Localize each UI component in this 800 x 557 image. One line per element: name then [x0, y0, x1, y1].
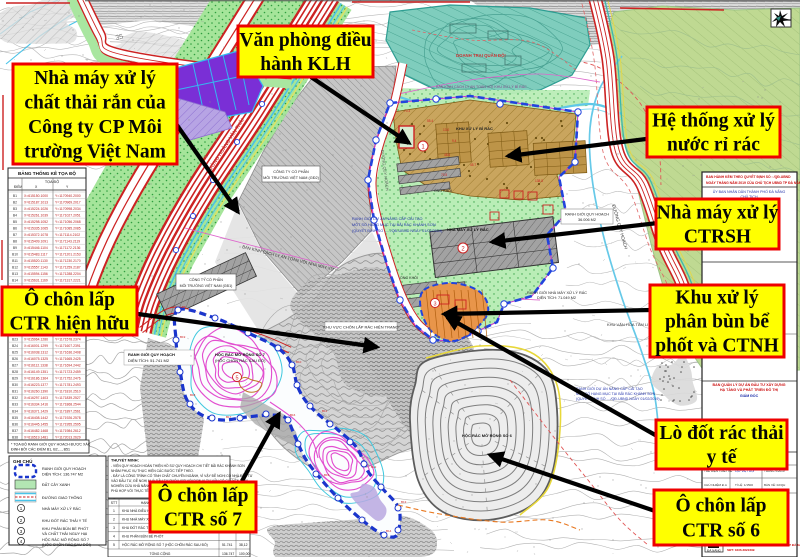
svg-text:(HỘC CHÔN RÁC SAU ĐỐI): (HỘC CHÔN RÁC SAU ĐỐI) [42, 542, 92, 547]
svg-text:X=615964.1286: X=615964.1286 [24, 338, 48, 342]
svg-text:Y=1171636.2408: Y=1171636.2408 [55, 351, 81, 355]
svg-text:CTR hiện hữu: CTR hiện hữu [9, 314, 129, 335]
svg-text:B2: B2 [13, 200, 17, 204]
svg-text:X=616519.1481: X=616519.1481 [24, 435, 48, 439]
svg-text:B14: B14 [386, 529, 392, 533]
svg-text:DIỆN TÍCH: 71.049 M2: DIỆN TÍCH: 71.049 M2 [537, 295, 576, 300]
svg-text:X=616149.1351: X=616149.1351 [24, 370, 48, 374]
svg-text:SĐT: 0236.3822399: SĐT: 0236.3822399 [727, 548, 755, 552]
svg-text:B32: B32 [12, 396, 18, 400]
svg-text:Y=1171839.2527: Y=1171839.2527 [55, 396, 81, 400]
svg-text:Y=1172013.2629: Y=1172013.2629 [55, 435, 81, 439]
svg-text:B7: B7 [13, 233, 17, 237]
svg-text:Lò đốt rác thải: Lò đốt rác thải [659, 423, 784, 444]
svg-text:Văn phòng điều: Văn phòng điều [239, 30, 371, 51]
svg-text:Nhà máy xử lý: Nhà máy xử lý [34, 68, 156, 89]
svg-text:- VIỆN QUY HOẠCH HOÀN THIỆN HỒ: - VIỆN QUY HOẠCH HOÀN THIỆN HỒ SƠ QUY HO… [111, 463, 245, 468]
svg-text:X=616445.1455: X=616445.1455 [24, 422, 48, 426]
svg-text:Y=1171665.2425: Y=1171665.2425 [55, 357, 81, 361]
svg-text:CTR số 7: CTR số 7 [164, 510, 242, 531]
svg-text:KHU PHÂN BÙN BỂ PHỐT: KHU PHÂN BÙN BỂ PHỐT [42, 526, 89, 531]
svg-text:X=616223.1377: X=616223.1377 [24, 383, 48, 387]
svg-text:X=615298.1052: X=615298.1052 [24, 220, 48, 224]
svg-text:HỘC RÁC MỞ RỘNG SỐ 7 (HỘC CHÔN: HỘC RÁC MỞ RỘNG SỐ 7 (HỘC CHÔN RÁC SAU Đ… [122, 542, 208, 547]
svg-text:B25: B25 [12, 351, 18, 355]
svg-text:ĐƯỜNG GIAO THÔNG: ĐƯỜNG GIAO THÔNG [42, 495, 82, 500]
svg-text:RANH GIỚI DỰ ÁN NÂNG CẤP CẢI T: RANH GIỚI DỰ ÁN NÂNG CẤP CẢI TẠO [352, 216, 423, 221]
svg-text:B35: B35 [12, 416, 18, 420]
svg-text:70.5: 70.5 [441, 173, 447, 177]
svg-text:B11: B11 [12, 259, 18, 263]
svg-text:GHI CHÚ: GHI CHÚ [13, 458, 33, 464]
svg-text:B5: B5 [13, 220, 17, 224]
svg-text:2: 2 [113, 517, 115, 521]
svg-text:B33: B33 [12, 403, 18, 407]
svg-text:MỘT SỐ HẠNG MỤC TẠI BÃI RÁC KH: MỘT SỐ HẠNG MỤC TẠI BÃI RÁC KHÁNH SƠN [352, 222, 436, 227]
svg-text:THUYẾT MINH:: THUYẾT MINH: [111, 458, 139, 463]
svg-text:ĐÀ NẴNG: ĐÀ NẴNG [707, 548, 721, 553]
svg-text:TỌA ĐỘ: TỌA ĐỘ [45, 179, 59, 184]
svg-text:B34: B34 [12, 409, 18, 413]
svg-text:(HỘC CHÔN RÁC SAU ĐÓ): (HỘC CHÔN RÁC SAU ĐÓ) [215, 358, 266, 363]
svg-text:X=615409.1091: X=615409.1091 [24, 240, 48, 244]
svg-text:TỈ LỆ: 1/1500: TỈ LỆ: 1/1500 [735, 482, 753, 487]
svg-text:B14: B14 [12, 279, 18, 283]
svg-text:HỘC RÁC MỞ RỘNG SỐ 7: HỘC RÁC MỞ RỘNG SỐ 7 [42, 537, 89, 542]
svg-text:B29: B29 [12, 377, 18, 381]
svg-text:RANH GIỚI QUY HOẠCH: RANH GIỚI QUY HOẠCH [42, 466, 86, 471]
svg-text:HỘC RÁC MỞ RỘNG SỐ 7: HỘC RÁC MỞ RỘNG SỐ 7 [215, 352, 266, 357]
svg-text:X=615520.1130: X=615520.1130 [24, 259, 48, 263]
svg-text:* TỌA ĐỘ RANH GIỚI QUY HOẠCH Đ: * TỌA ĐỘ RANH GIỚI QUY HOẠCH ĐƯỢC XÁC [11, 442, 91, 447]
svg-text:Y=1171868.2544: Y=1171868.2544 [55, 403, 81, 407]
svg-text:KHU VĂN HÓA TÂM LINH: KHU VĂN HÓA TÂM LINH [607, 322, 654, 327]
svg-text:PHÙ HỢP VỚI THỰC TẾ.: PHÙ HỢP VỚI THỰC TẾ. [111, 488, 150, 493]
svg-text:B26: B26 [12, 357, 18, 361]
svg-text:X=615261.1039: X=615261.1039 [24, 214, 48, 218]
svg-text:B18: B18 [190, 393, 196, 397]
svg-text:KHU XỬ LÝ BỈ RÁC: KHU XỬ LÝ BỈ RÁC [456, 126, 493, 131]
svg-text:45.7: 45.7 [470, 163, 476, 167]
svg-text:70.3: 70.3 [404, 109, 410, 113]
svg-text:Y=1170998.2034: Y=1170998.2034 [55, 207, 81, 211]
svg-text:Y=1171926.2578: Y=1171926.2578 [55, 416, 81, 420]
svg-text:X=616371.1429: X=616371.1429 [24, 409, 48, 413]
svg-text:HẠ TẦNG VÀ PHÁT TRIỂN ĐÔ THỊ: HẠ TẦNG VÀ PHÁT TRIỂN ĐÔ THỊ [720, 387, 778, 392]
svg-text:38,12: 38,12 [239, 543, 248, 547]
svg-text:Y=1171143.2119: Y=1171143.2119 [55, 240, 80, 244]
svg-text:B23: B23 [12, 338, 18, 342]
svg-text:Y=1171694.2442: Y=1171694.2442 [55, 364, 81, 368]
svg-text:Y=1171230.2170: Y=1171230.2170 [55, 259, 81, 263]
svg-text:DIỆN TÍCH: 51.741 M2: DIỆN TÍCH: 51.741 M2 [128, 358, 170, 363]
svg-text:Y=1171607.2391: Y=1171607.2391 [55, 344, 81, 348]
svg-text:B8: B8 [13, 240, 17, 244]
svg-text:NHÀ MÁY XỬ LÝ RÁC: NHÀ MÁY XỬ LÝ RÁC [42, 506, 81, 511]
svg-text:MÔI TRƯỜNG VIỆT NAM (GĐ2): MÔI TRƯỜNG VIỆT NAM (GĐ2) [263, 175, 319, 180]
svg-text:Khu xử lý: Khu xử lý [675, 288, 758, 309]
svg-text:X=616334.1416: X=616334.1416 [24, 403, 48, 407]
svg-text:B13: B13 [401, 500, 407, 504]
svg-text:Y=1171288.2204: Y=1171288.2204 [55, 272, 81, 276]
svg-text:B12: B12 [371, 465, 377, 469]
svg-text:Công ty CP Môi: Công ty CP Môi [28, 117, 162, 138]
svg-text:CTR số 6: CTR số 6 [682, 521, 760, 542]
svg-text:X=616075.1325: X=616075.1325 [24, 357, 48, 361]
svg-text:Y=1170940.2000: Y=1170940.2000 [55, 194, 81, 198]
svg-text:48.5: 48.5 [444, 153, 450, 157]
svg-text:B12: B12 [12, 266, 18, 270]
svg-text:BAN QUẢN LÝ DỰ ÁN ĐẦU TƯ XÂY D: BAN QUẢN LÝ DỰ ÁN ĐẦU TƯ XÂY DỰNG [713, 382, 786, 387]
svg-text:ỐNG KHÓI: ỐNG KHÓI [434, 188, 452, 193]
svg-text:Y=1171056.2068: Y=1171056.2068 [55, 220, 81, 224]
svg-text:nước rỉ rác: nước rỉ rác [667, 135, 760, 156]
svg-text:RANH GIỚI QUY HOẠCH: RANH GIỚI QUY HOẠCH [128, 352, 175, 357]
svg-text:phốt và CTNH: phốt và CTNH [655, 336, 779, 357]
svg-text:51.741: 51.741 [222, 543, 232, 547]
svg-text:phân bùn bể: phân bùn bể [665, 312, 770, 333]
svg-text:Y=1170969.2017: Y=1170969.2017 [55, 200, 81, 204]
svg-text:B38: B38 [12, 435, 18, 439]
svg-text:B31: B31 [12, 390, 18, 394]
svg-text:X=615224.1026: X=615224.1026 [24, 207, 48, 211]
svg-text:55.4: 55.4 [427, 119, 433, 123]
svg-text:RANH GIỚI NHÀ MÁY XỬ LÝ RÁC: RANH GIỚI NHÀ MÁY XỬ LÝ RÁC [527, 290, 587, 295]
svg-text:X=616408.1442: X=616408.1442 [24, 416, 48, 420]
svg-text:CHỦ NHIỆM Đ.A: CHỦ NHIỆM Đ.A [704, 482, 727, 487]
svg-text:DOANH TRẠI QUÂN ĐỘI: DOANH TRẠI QUÂN ĐỘI [456, 53, 506, 58]
svg-text:B16: B16 [290, 413, 296, 417]
svg-text:KHU ĐỐT RÁC THẢI Y TẾ: KHU ĐỐT RÁC THẢI Y TẾ [42, 518, 87, 523]
svg-text:138.8: 138.8 [535, 179, 543, 183]
svg-text:Y=1171085.2085: Y=1171085.2085 [55, 227, 81, 231]
svg-text:36.006 M2: 36.006 M2 [578, 218, 596, 222]
svg-text:Y=1171955.2595: Y=1171955.2595 [55, 422, 81, 426]
svg-text:DIỆN TÍCH: 136.747 M2: DIỆN TÍCH: 136.747 M2 [42, 472, 83, 477]
svg-text:5: 5 [235, 376, 238, 382]
svg-text:X=616297.1403: X=616297.1403 [24, 396, 48, 400]
svg-text:hành KLH: hành KLH [260, 54, 351, 75]
svg-text:4: 4 [113, 535, 115, 539]
svg-text:Y=1171172.2136: Y=1171172.2136 [55, 246, 81, 250]
svg-text:TỔNG CỘNG: TỔNG CỘNG [150, 551, 171, 556]
svg-text:X=616038.1312: X=616038.1312 [24, 351, 48, 355]
svg-text:KHU PHÂN BÙN BỂ PHỐT: KHU PHÂN BÙN BỂ PHỐT [122, 534, 163, 539]
svg-text:ĐỊNH BỞI CÁC ĐIỂM B1, B2,...,: ĐỊNH BỞI CÁC ĐIỂM B1, B2,..., B51 [11, 447, 70, 452]
svg-text:Y=1171114.2102: Y=1171114.2102 [55, 233, 80, 237]
svg-text:Y=1171027.2051: Y=1171027.2051 [55, 214, 81, 218]
svg-text:CÔNG TY CỔ PHẦN: CÔNG TY CỔ PHẦN [273, 169, 309, 174]
svg-text:Y=1171897.2561: Y=1171897.2561 [55, 409, 81, 413]
svg-text:ĐIỂM: ĐIỂM [14, 184, 22, 189]
svg-text:B36: B36 [12, 422, 18, 426]
svg-text:Y=1171201.2153: Y=1171201.2153 [55, 253, 81, 257]
svg-text:B10: B10 [12, 253, 18, 257]
svg-text:Y=1171259.2187: Y=1171259.2187 [55, 266, 81, 270]
svg-text:CÔNG TY CỔ PHẦN: CÔNG TY CỔ PHẦN [189, 277, 223, 282]
svg-text:3: 3 [433, 302, 436, 308]
svg-text:Ô chôn lấp: Ô chôn lấp [157, 485, 248, 507]
svg-text:- ĐÂY LÀ CÔNG TRÌNH CÓ TÍNH CH: - ĐÂY LÀ CÔNG TRÌNH CÓ TÍNH CHẤT CHUYÊN … [111, 473, 253, 478]
svg-text:B27: B27 [12, 364, 18, 368]
svg-text:Y=1171810.2510: Y=1171810.2510 [55, 390, 81, 394]
svg-text:B19: B19 [180, 335, 186, 339]
svg-text:ỦY BAN NHÂN DÂN THÀNH PHỐ ĐÀ N: ỦY BAN NHÂN DÂN THÀNH PHỐ ĐÀ NẴNG [713, 189, 786, 194]
svg-text:X=616112.1338: X=616112.1338 [24, 364, 48, 368]
svg-text:B37: B37 [12, 429, 18, 433]
svg-text:B30: B30 [12, 383, 18, 387]
svg-text:BẢNG THỐNG KÊ TỌA ĐỘ: BẢNG THỐNG KÊ TỌA ĐỘ [18, 169, 76, 176]
svg-text:X=615335.1065: X=615335.1065 [24, 227, 48, 231]
svg-text:5: 5 [113, 543, 115, 547]
svg-text:B15: B15 [324, 473, 330, 477]
svg-text:CTRSH: CTRSH [684, 227, 751, 248]
svg-text:B10: B10 [296, 360, 302, 364]
svg-text:MÔI TRƯỜNG VIỆT NAM (GĐ1): MÔI TRƯỜNG VIỆT NAM (GĐ1) [180, 283, 233, 288]
svg-text:ĐẤT CÂY XANH: ĐẤT CÂY XANH [42, 482, 70, 487]
svg-text:13.0: 13.0 [443, 128, 449, 132]
svg-text:ỐNG KHÓI: ỐNG KHÓI [400, 275, 418, 280]
svg-text:X=615150.1000: X=615150.1000 [24, 194, 48, 198]
svg-text:3: 3 [113, 526, 115, 530]
svg-text:VÀ CHẤT THẢI NGUY HẠI: VÀ CHẤT THẢI NGUY HẠI [42, 531, 87, 536]
svg-text:X=616001.1299: X=616001.1299 [24, 344, 48, 348]
svg-text:Nhà máy xử lý: Nhà máy xử lý [657, 203, 779, 224]
svg-text:Y=1171578.2374: Y=1171578.2374 [55, 338, 81, 342]
svg-text:Hệ thống xử lý: Hệ thống xử lý [652, 111, 775, 132]
svg-text:X=615594.1156: X=615594.1156 [24, 272, 48, 276]
svg-text:RANH GIỚI QUY HOẠCH: RANH GIỚI QUY HOẠCH [565, 212, 609, 217]
svg-text:X=615557.1143: X=615557.1143 [24, 266, 48, 270]
svg-text:X=615187.1013: X=615187.1013 [24, 200, 48, 204]
svg-text:136.747: 136.747 [222, 552, 234, 556]
svg-text:B8: B8 [182, 305, 186, 309]
svg-text:Y=1171984.2612: Y=1171984.2612 [55, 429, 81, 433]
svg-text:Y=1171317.2221: Y=1171317.2221 [55, 279, 81, 283]
svg-text:X=615446.1104: X=615446.1104 [24, 246, 48, 250]
svg-text:HỘC RÁC MỞ RỘNG SỐ 6: HỘC RÁC MỞ RỘNG SỐ 6 [462, 433, 513, 438]
svg-text:B3: B3 [13, 207, 17, 211]
svg-text:BÁN KÍNH CÁCH LY AN TOÀN VỚI K: BÁN KÍNH CÁCH LY AN TOÀN VỚI KHU XỬ LÝ B… [436, 84, 527, 89]
svg-text:B28: B28 [12, 370, 18, 374]
svg-text:GIÁM ĐỐC: GIÁM ĐỐC [740, 393, 759, 398]
svg-text:STT: STT [111, 501, 117, 505]
svg-text:X=616260.1390: X=616260.1390 [24, 390, 48, 394]
svg-text:chất thải rắn của: chất thải rắn của [24, 92, 166, 113]
svg-text:B11: B11 [322, 409, 327, 413]
svg-text:BAN HÀNH KÈM THEO QUYẾT ĐỊNH S: BAN HÀNH KÈM THEO QUYẾT ĐỊNH SỐ : /QĐ-UB… [706, 174, 791, 179]
svg-text:NGHIÊN CỨU KHẢ NĂNG: NGHIÊN CỨU KHẢ NĂNG [111, 483, 151, 488]
svg-text:B24: B24 [12, 344, 18, 348]
svg-text:100,00: 100,00 [239, 552, 249, 556]
svg-text:X=615483.1117: X=615483.1117 [24, 253, 48, 257]
svg-text:Y=1171781.2493: Y=1171781.2493 [55, 383, 81, 387]
svg-text:X=616482.1468: X=616482.1468 [24, 429, 48, 433]
svg-text:X=616186.1364: X=616186.1364 [24, 377, 48, 381]
svg-text:B17: B17 [226, 415, 232, 419]
svg-text:NHÀ MÁY XỬ LÝ RÁC: NHÀ MÁY XỬ LÝ RÁC [447, 227, 489, 232]
svg-text:Ô chôn lấp: Ô chôn lấp [24, 289, 115, 311]
svg-text:(QUYẾT ĐỊNH SỐ ....../QĐ-UBND: (QUYẾT ĐỊNH SỐ ....../QĐ-UBND NGÀY 01/02… [352, 228, 443, 233]
svg-text:B9: B9 [13, 246, 17, 250]
svg-text:trường Việt Nam: trường Việt Nam [24, 141, 166, 162]
svg-text:NHẰM PHỤC VỤ THỰC HIỆN CÁC BƯỚ: NHẰM PHỤC VỤ THỰC HIỆN CÁC BƯỚC TIẾP THE… [111, 468, 194, 473]
svg-text:BẢN VẼ: 02/QH: BẢN VẼ: 02/QH [764, 482, 785, 487]
svg-text:B4: B4 [13, 214, 17, 218]
svg-text:B1: B1 [13, 194, 17, 198]
svg-text:Y=1171752.2476: Y=1171752.2476 [55, 377, 81, 381]
svg-text:B6: B6 [13, 227, 17, 231]
svg-text:RANH GIỚI DỰ ÁN NÂNG CẤP CẢI T: RANH GIỚI DỰ ÁN NÂNG CẤP CẢI TẠO [576, 386, 643, 391]
svg-text:1: 1 [113, 509, 115, 513]
svg-text:X=615631.1169: X=615631.1169 [24, 279, 48, 283]
svg-text:NGÀY THÁNG NĂM 2019 CỦA CH: NGÀY THÁNG NĂM 2019 CỦA CHỦ TỊCH UBND TP… [706, 180, 800, 185]
svg-text:KHU VỰC CHÔN LẤP RÁC HIỆN TRẠN: KHU VỰC CHÔN LẤP RÁC HIỆN TRẠNG [323, 325, 398, 330]
svg-text:y tế: y tế [707, 447, 738, 468]
svg-text:B13: B13 [12, 272, 18, 276]
svg-text:9.4: 9.4 [452, 139, 457, 143]
svg-text:Y=1171723.2459: Y=1171723.2459 [55, 370, 81, 374]
svg-text:X=615372.1078: X=615372.1078 [24, 233, 48, 237]
svg-text:Ô chôn lấp: Ô chôn lấp [675, 495, 766, 517]
